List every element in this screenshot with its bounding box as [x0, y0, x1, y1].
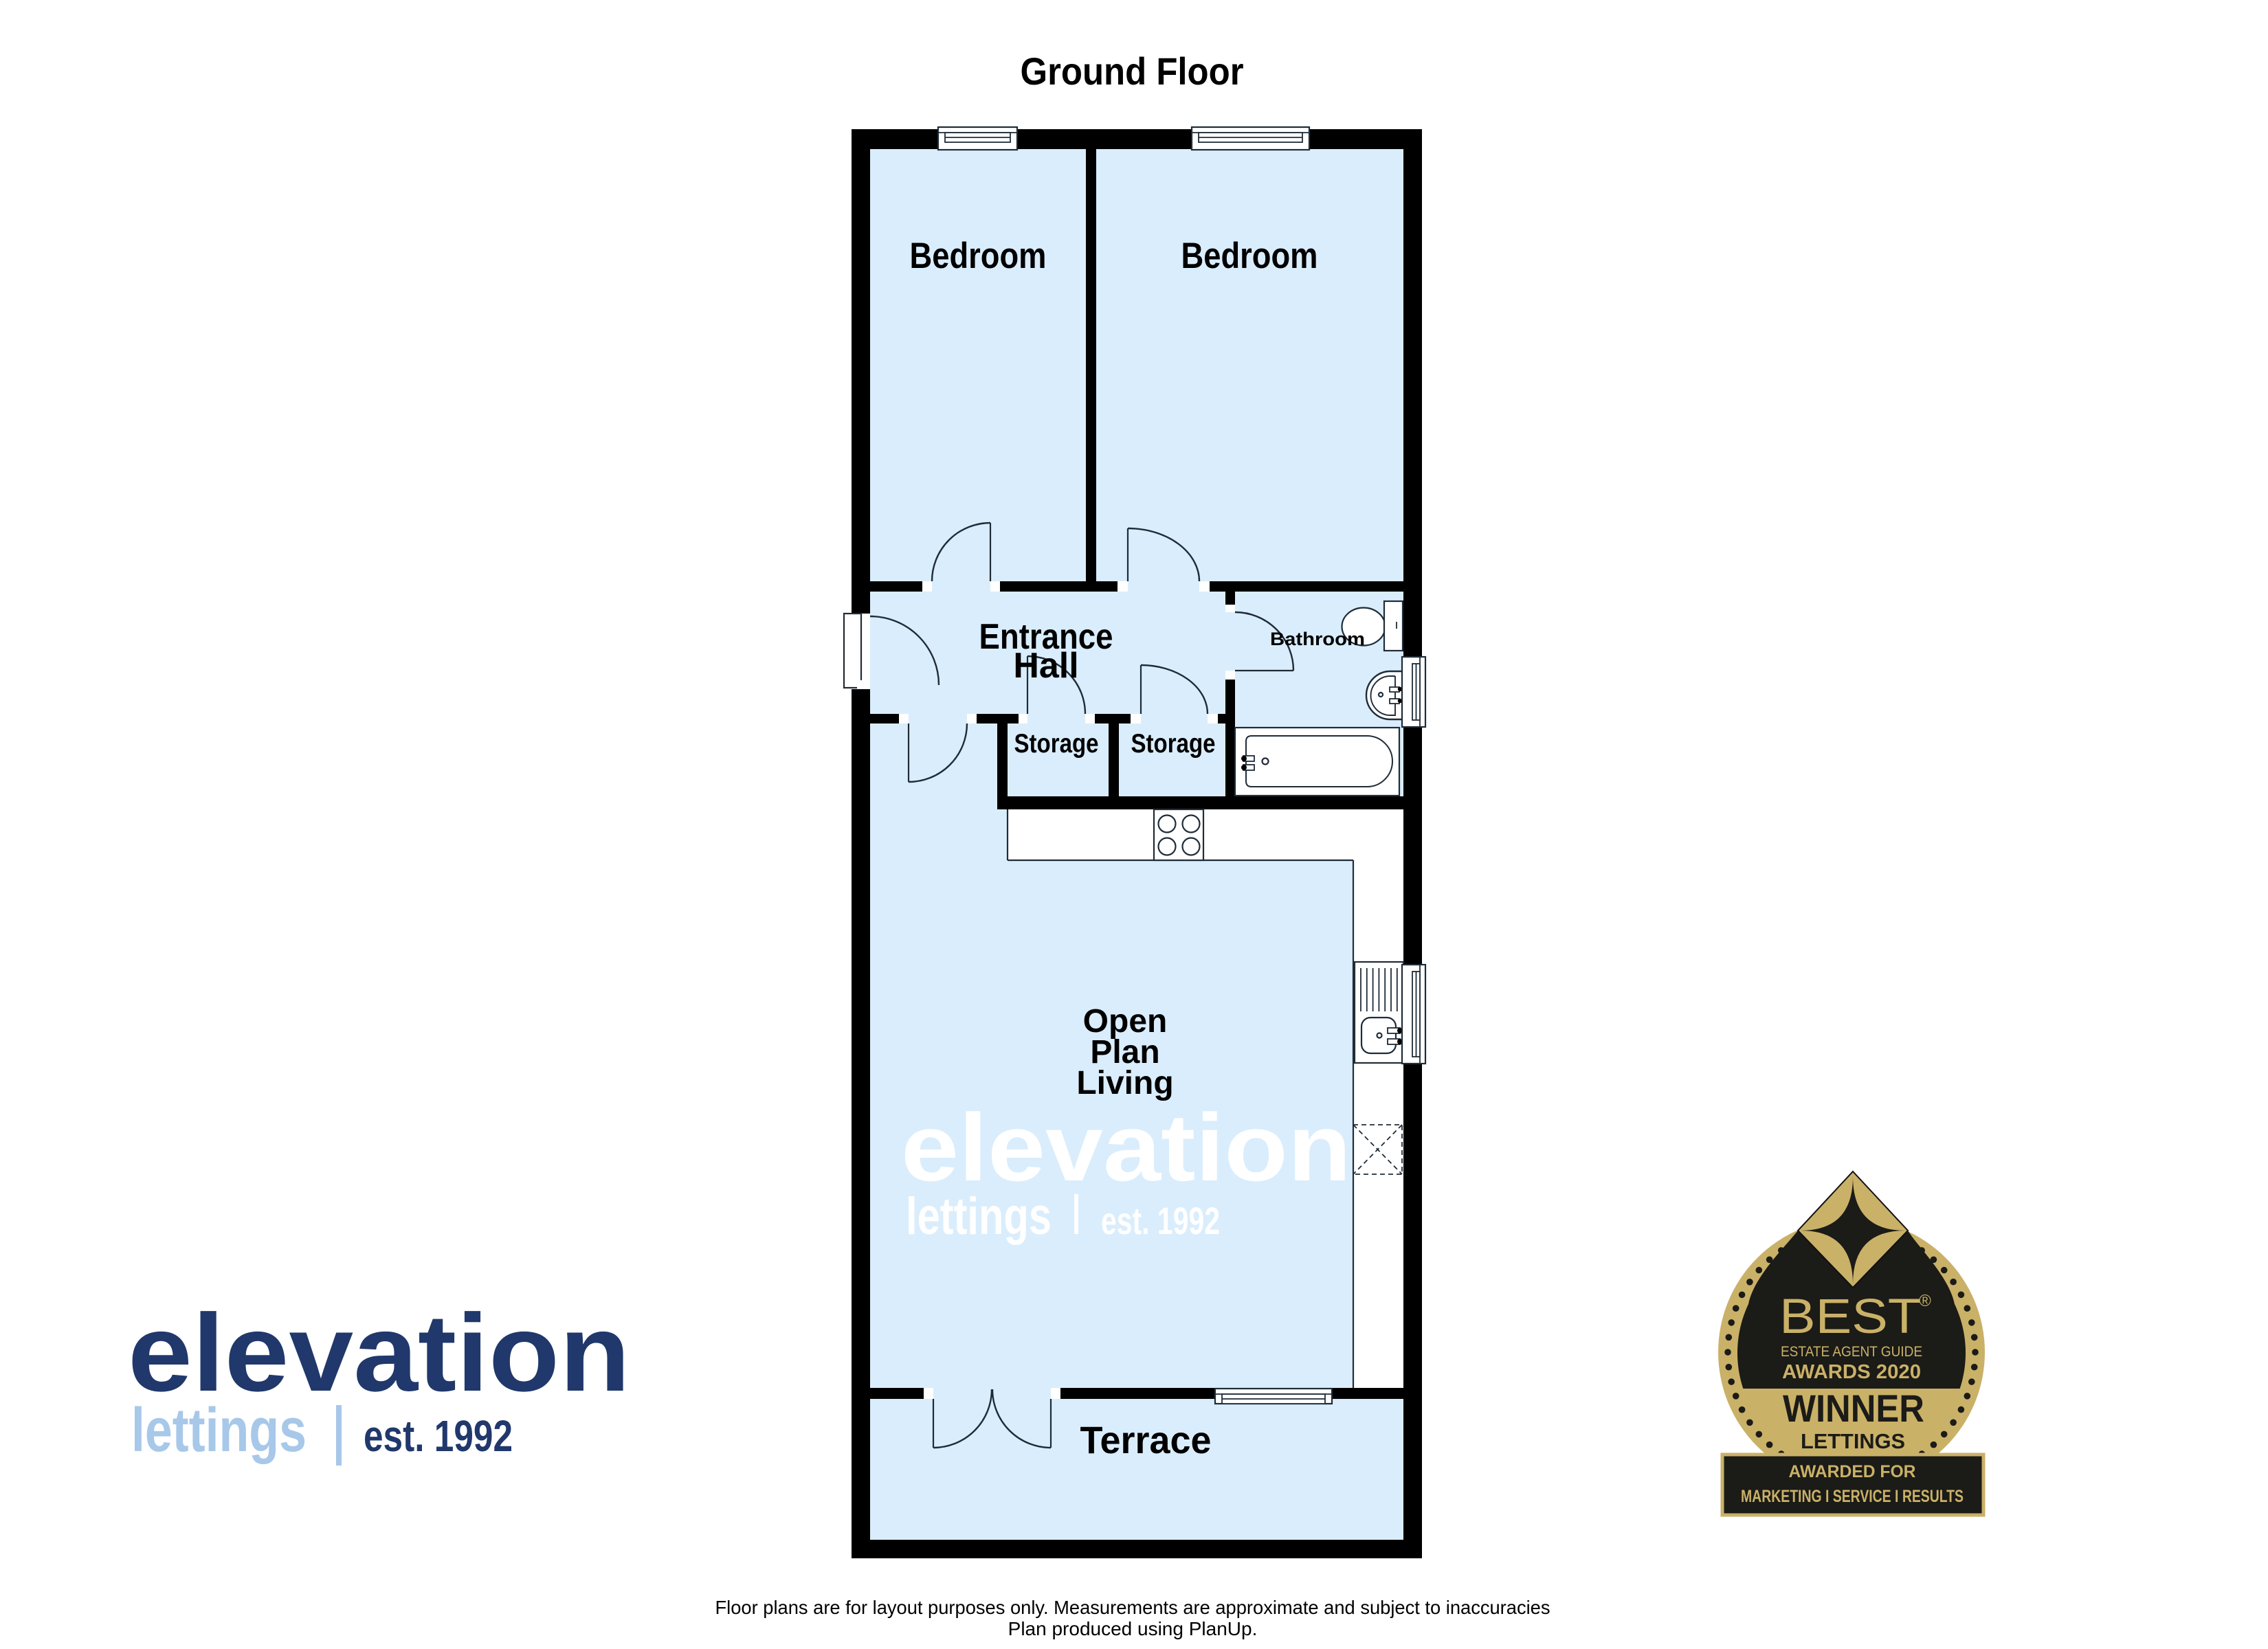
svg-text:elevation: elevation [901, 1095, 1351, 1201]
svg-text:lettings: lettings [131, 1396, 307, 1465]
svg-text:Floor plans are for layout pur: Floor plans are for layout purposes only… [715, 1597, 1550, 1618]
svg-text:WINNER: WINNER [1783, 1387, 1924, 1430]
svg-text:Hall: Hall [1013, 646, 1078, 686]
svg-text:LETTINGS: LETTINGS [1801, 1429, 1905, 1453]
svg-text:est. 1992: est. 1992 [364, 1411, 513, 1461]
svg-text:AWARDED FOR: AWARDED FOR [1789, 1462, 1916, 1481]
svg-text:lettings: lettings [906, 1187, 1052, 1246]
svg-text:Bedroom: Bedroom [910, 236, 1047, 276]
svg-text:Storage: Storage [1131, 729, 1216, 759]
svg-text:AWARDS 2020: AWARDS 2020 [1782, 1361, 1921, 1383]
svg-text:®: ® [1919, 1292, 1931, 1310]
svg-text:Terrace: Terrace [1080, 1418, 1212, 1461]
svg-text:Plan produced using PlanUp.: Plan produced using PlanUp. [1008, 1618, 1258, 1639]
svg-text:Bathroom: Bathroom [1270, 629, 1365, 649]
svg-text:Storage: Storage [1014, 729, 1099, 759]
svg-text:BEST: BEST [1779, 1290, 1921, 1344]
svg-text:Ground Floor: Ground Floor [1021, 49, 1244, 93]
svg-text:MARKETING I SERVICE I RESULTS: MARKETING I SERVICE I RESULTS [1741, 1487, 1964, 1506]
svg-text:ESTATE AGENT GUIDE: ESTATE AGENT GUIDE [1781, 1344, 1922, 1360]
svg-text:Bedroom: Bedroom [1181, 236, 1318, 276]
svg-text:est. 1992: est. 1992 [1101, 1199, 1220, 1242]
